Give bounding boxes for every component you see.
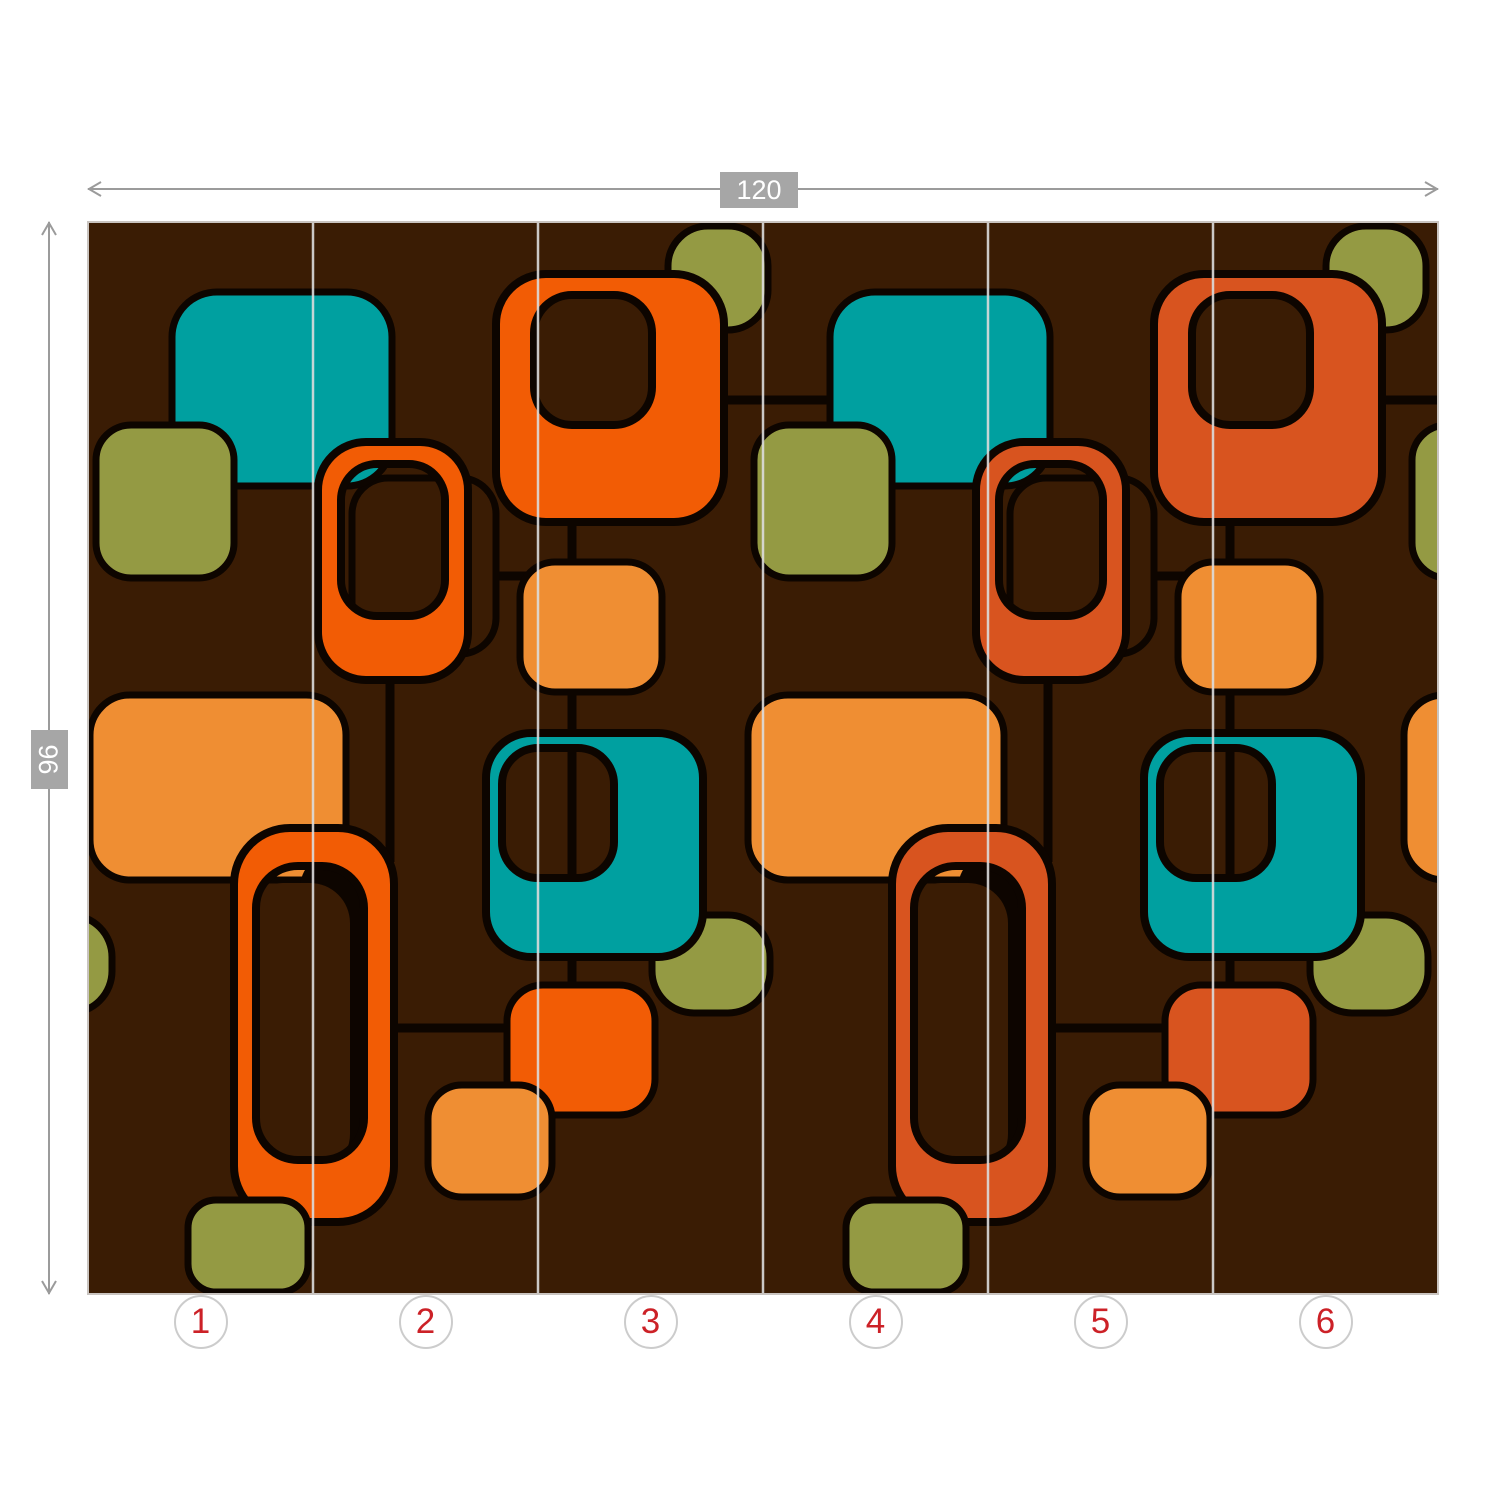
lightorange-rect-small (428, 1085, 552, 1197)
olive-square-bottom (188, 1200, 308, 1292)
panel-number-badge: 5 (1074, 1295, 1128, 1349)
lightorange-rect-edge (1404, 695, 1500, 880)
panel-number-badge: 4 (849, 1295, 903, 1349)
olive-square-left (754, 425, 892, 578)
panel-number-badge: 3 (624, 1295, 678, 1349)
mural-artwork (0, 0, 1500, 1500)
height-dimension-label: 96 (31, 730, 68, 789)
width-value: 120 (736, 177, 781, 204)
width-dimension-label: 120 (720, 172, 798, 208)
olive-square-left (96, 425, 234, 578)
product-dimension-diagram: 120 96 123456 (0, 0, 1500, 1500)
olive-pill-edge (0, 915, 112, 1013)
panel-number-badge: 6 (1299, 1295, 1353, 1349)
lightorange-square-small (520, 562, 662, 692)
olive-square-bottom (846, 1200, 966, 1292)
wallpaper-mural (0, 222, 1500, 1294)
lightorange-rect-small (1086, 1085, 1210, 1197)
height-value: 96 (36, 744, 63, 774)
olive-square-edge (1412, 425, 1500, 578)
panel-number-badge: 1 (174, 1295, 228, 1349)
lightorange-square-small (1178, 562, 1320, 692)
panel-number-badge: 2 (399, 1295, 453, 1349)
